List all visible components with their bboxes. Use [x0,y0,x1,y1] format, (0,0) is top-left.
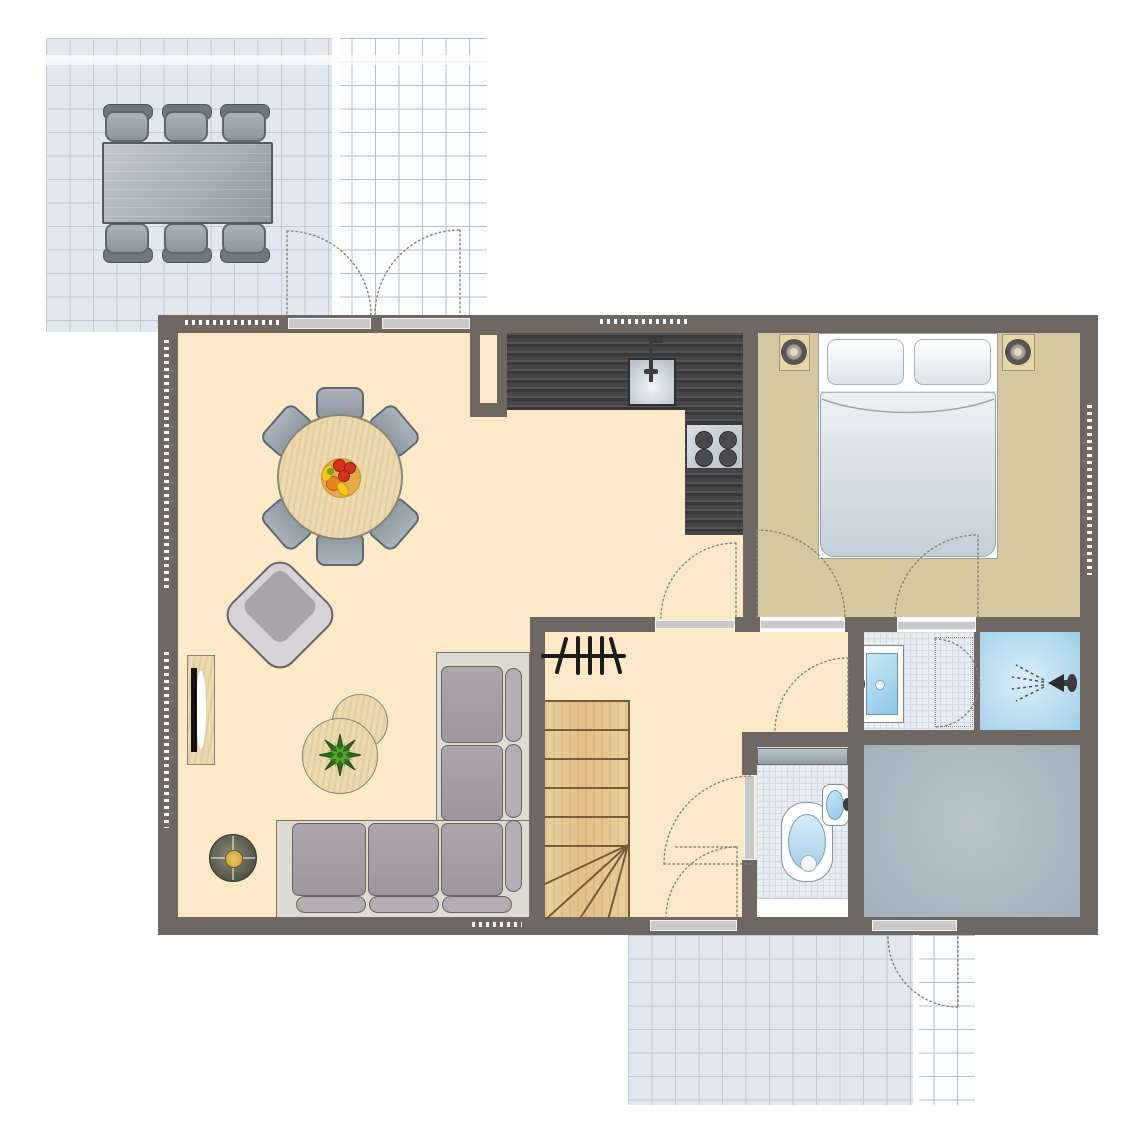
utility-terrace-door-arc [888,937,958,1007]
french-door-right-arc [375,230,460,315]
bedroom-door-arc [757,530,845,618]
floor-plan [0,0,1145,1145]
kitchen-door-arc [661,543,736,618]
back-door-arc [666,847,737,918]
duvet-fold [822,399,994,413]
stair-winder-fan [545,845,628,920]
french-door-left-arc [287,231,371,315]
potted-plant [319,734,361,776]
bathroom-swing-door-arc [935,639,979,727]
door-arcs [287,230,979,1007]
radiator-symbol [543,638,624,673]
toilet-door-arc [664,776,752,864]
shower-head [1012,665,1077,701]
hall-bathroom-door-arc [775,658,848,730]
bedroom-bathroom-door-arc [895,535,978,618]
symbols-overlay [0,0,1145,1145]
kitchen-faucet [644,338,663,382]
